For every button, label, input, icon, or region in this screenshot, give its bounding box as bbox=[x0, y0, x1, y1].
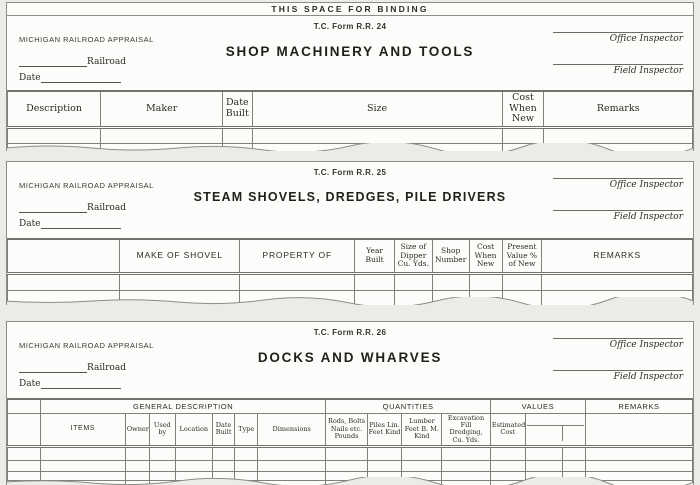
empty-cell bbox=[490, 447, 525, 461]
column-header-items: ITEMS bbox=[40, 413, 125, 447]
column-header-year-built: Year Built bbox=[355, 239, 395, 273]
field-inspector-signature-line: Field Inspector bbox=[553, 64, 683, 76]
date-row: Date bbox=[19, 219, 121, 229]
empty-cell bbox=[8, 273, 120, 290]
office-inspector-label: Office Inspector bbox=[610, 340, 683, 350]
empty-cell bbox=[223, 127, 252, 143]
column-header-blank bbox=[8, 239, 120, 273]
column-header-cost-when-new: Cost When New bbox=[502, 91, 544, 127]
column-header-present-value: Present Value % of New bbox=[502, 239, 542, 273]
empty-cell bbox=[212, 461, 235, 472]
binding-strip: THIS SPACE FOR BINDING bbox=[7, 3, 693, 16]
column-header-location: Location bbox=[175, 413, 212, 447]
empty-cell bbox=[326, 461, 367, 472]
empty-cell bbox=[502, 127, 544, 143]
empty-cell bbox=[355, 273, 395, 290]
column-header-remarks: REMARKS bbox=[542, 239, 693, 273]
date-label: Date bbox=[19, 379, 41, 389]
empty-cell bbox=[125, 447, 149, 461]
empty-cell bbox=[235, 447, 258, 461]
empty-cell bbox=[326, 447, 367, 461]
agency-name: MICHIGAN RAILROAD APPRAISAL bbox=[19, 341, 154, 350]
values-blank-upper bbox=[527, 415, 584, 425]
column-header-property-of: PROPERTY OF bbox=[240, 239, 355, 273]
empty-cell bbox=[394, 273, 432, 290]
date-label: Date bbox=[19, 73, 41, 83]
railroad-blank-line bbox=[19, 364, 87, 373]
column-header-shop-number: Shop Number bbox=[432, 239, 469, 273]
group-header-quantities: QUANTITIES bbox=[326, 399, 490, 413]
column-header-date-built: Date Built bbox=[212, 413, 235, 447]
form-number: T.C. Form R.R. 24 bbox=[7, 22, 693, 31]
column-header-rods-bolts: Rods, Bolts Nails etc. Pounds bbox=[326, 413, 367, 447]
office-inspector-label: Office Inspector bbox=[610, 34, 683, 44]
office-inspector-signature-line: Office Inspector bbox=[553, 338, 683, 350]
empty-cell bbox=[402, 447, 442, 461]
values-subcolumn-a bbox=[527, 426, 563, 441]
empty-cell bbox=[40, 447, 125, 461]
group-header-values: VALUES bbox=[490, 399, 585, 413]
table-row bbox=[8, 461, 693, 472]
form-rr-24: THIS SPACE FOR BINDING T.C. Form R.R. 24… bbox=[6, 2, 694, 151]
empty-cell bbox=[544, 127, 693, 143]
agency-name: MICHIGAN RAILROAD APPRAISAL bbox=[19, 35, 154, 44]
empty-cell bbox=[402, 461, 442, 472]
column-header-date-built: Date Built bbox=[223, 91, 252, 127]
header-row: Description Maker Date Built Size Cost W… bbox=[8, 91, 693, 127]
torn-edge bbox=[6, 477, 694, 485]
steam-shovels-table: MAKE OF SHOVEL PROPERTY OF Year Built Si… bbox=[7, 238, 693, 305]
column-header-used-by: Used by bbox=[149, 413, 175, 447]
table-row bbox=[8, 447, 693, 461]
letterhead: T.C. Form R.R. 24 MICHIGAN RAILROAD APPR… bbox=[7, 16, 693, 90]
field-inspector-label: Field Inspector bbox=[614, 372, 683, 382]
office-inspector-signature-line: Office Inspector bbox=[553, 32, 683, 44]
letterhead: T.C. Form R.R. 25 MICHIGAN RAILROAD APPR… bbox=[7, 162, 693, 238]
column-header-piles: Piles Lin. Feet Kind bbox=[367, 413, 402, 447]
empty-cell bbox=[175, 447, 212, 461]
sub-header-row: ITEMS Owner Used by Location Date Built … bbox=[8, 413, 693, 447]
column-header-owner: Owner bbox=[125, 413, 149, 447]
empty-cell bbox=[120, 273, 240, 290]
table-row bbox=[8, 127, 693, 143]
empty-cell bbox=[525, 461, 563, 472]
column-header-size: Size bbox=[252, 91, 502, 127]
group-header-row: GENERAL DESCRIPTION QUANTITIES VALUES RE… bbox=[8, 399, 693, 413]
header-row: MAKE OF SHOVEL PROPERTY OF Year Built Si… bbox=[8, 239, 693, 273]
column-header-lumber: Lumber Feet B. M. Kind bbox=[402, 413, 442, 447]
form-rr-26: T.C. Form R.R. 26 MICHIGAN RAILROAD APPR… bbox=[6, 321, 694, 485]
empty-cell bbox=[8, 447, 41, 461]
column-header-remarks: Remarks bbox=[544, 91, 693, 127]
railroad-blank-line bbox=[19, 204, 87, 213]
date-blank-line bbox=[41, 220, 121, 229]
empty-cell bbox=[586, 461, 693, 472]
date-blank-line bbox=[41, 380, 121, 389]
field-inspector-signature-line: Field Inspector bbox=[553, 370, 683, 382]
column-header-description: Description bbox=[8, 91, 101, 127]
empty-cell bbox=[525, 447, 563, 461]
docks-wharves-table: GENERAL DESCRIPTION QUANTITIES VALUES RE… bbox=[7, 398, 693, 485]
torn-edge bbox=[6, 143, 694, 151]
shop-machinery-table: Description Maker Date Built Size Cost W… bbox=[7, 90, 693, 151]
column-header-dimensions: Dimensions bbox=[257, 413, 326, 447]
empty-cell bbox=[563, 447, 586, 461]
empty-cell bbox=[149, 461, 175, 472]
column-header-size-of-dipper: Size of Dipper Cu. Yds. bbox=[394, 239, 432, 273]
group-header-blank bbox=[8, 399, 41, 413]
empty-cell bbox=[40, 461, 125, 472]
values-subcolumn-b bbox=[562, 426, 584, 441]
empty-cell bbox=[432, 273, 469, 290]
column-header-make-of-shovel: MAKE OF SHOVEL bbox=[120, 239, 240, 273]
column-header-type: Type bbox=[235, 413, 258, 447]
railroad-label: Railroad bbox=[87, 203, 126, 213]
empty-cell bbox=[125, 461, 149, 472]
field-inspector-label: Field Inspector bbox=[614, 212, 683, 222]
office-inspector-signature-line: Office Inspector bbox=[553, 178, 683, 190]
empty-cell bbox=[212, 447, 235, 461]
form-title: SHOP MACHINERY AND TOOLS bbox=[107, 44, 593, 59]
empty-cell bbox=[469, 273, 502, 290]
empty-cell bbox=[586, 447, 693, 461]
form-rr-25: T.C. Form R.R. 25 MICHIGAN RAILROAD APPR… bbox=[6, 161, 694, 305]
field-inspector-label: Field Inspector bbox=[614, 66, 683, 76]
column-header-remarks-blank bbox=[586, 413, 693, 447]
empty-cell bbox=[175, 461, 212, 472]
agency-name: MICHIGAN RAILROAD APPRAISAL bbox=[19, 181, 154, 190]
values-blank-lower bbox=[527, 425, 584, 441]
form-number: T.C. Form R.R. 25 bbox=[7, 168, 693, 177]
empty-cell bbox=[8, 127, 101, 143]
office-inspector-label: Office Inspector bbox=[610, 180, 683, 190]
date-label: Date bbox=[19, 219, 41, 229]
column-header-cost-when-new: Cost When New bbox=[469, 239, 502, 273]
field-inspector-signature-line: Field Inspector bbox=[553, 210, 683, 222]
binding-label: THIS SPACE FOR BINDING bbox=[271, 4, 428, 14]
form-number: T.C. Form R.R. 26 bbox=[7, 328, 693, 337]
empty-cell bbox=[257, 447, 326, 461]
group-header-remarks: REMARKS bbox=[586, 399, 693, 413]
empty-cell bbox=[542, 273, 693, 290]
column-header-values-blank bbox=[525, 413, 585, 447]
empty-cell bbox=[490, 461, 525, 472]
form-title: STEAM SHOVELS, DREDGES, PILE DRIVERS bbox=[107, 190, 593, 204]
empty-cell bbox=[442, 461, 491, 472]
table-row bbox=[8, 273, 693, 290]
empty-cell bbox=[502, 273, 542, 290]
empty-cell bbox=[8, 461, 41, 472]
date-blank-line bbox=[41, 74, 121, 83]
column-header-estimated-cost: Estimated Cost bbox=[490, 413, 525, 447]
letterhead: T.C. Form R.R. 26 MICHIGAN RAILROAD APPR… bbox=[7, 322, 693, 398]
empty-cell bbox=[149, 447, 175, 461]
empty-cell bbox=[240, 273, 355, 290]
empty-cell bbox=[235, 461, 258, 472]
form-title: DOCKS AND WHARVES bbox=[107, 350, 593, 365]
railroad-row: Railroad bbox=[19, 203, 126, 213]
group-header-general-description: GENERAL DESCRIPTION bbox=[40, 399, 326, 413]
torn-edge bbox=[6, 297, 694, 305]
column-header-maker: Maker bbox=[101, 91, 223, 127]
date-row: Date bbox=[19, 73, 121, 83]
empty-cell bbox=[442, 447, 491, 461]
empty-cell bbox=[563, 461, 586, 472]
column-header-blank bbox=[8, 413, 41, 447]
empty-cell bbox=[257, 461, 326, 472]
railroad-blank-line bbox=[19, 58, 87, 67]
date-row: Date bbox=[19, 379, 121, 389]
empty-cell bbox=[367, 447, 402, 461]
empty-cell bbox=[367, 461, 402, 472]
empty-cell bbox=[252, 127, 502, 143]
empty-cell bbox=[101, 127, 223, 143]
column-header-excavation: Excavation Fill Dredging, Cu. Yds. bbox=[442, 413, 491, 447]
